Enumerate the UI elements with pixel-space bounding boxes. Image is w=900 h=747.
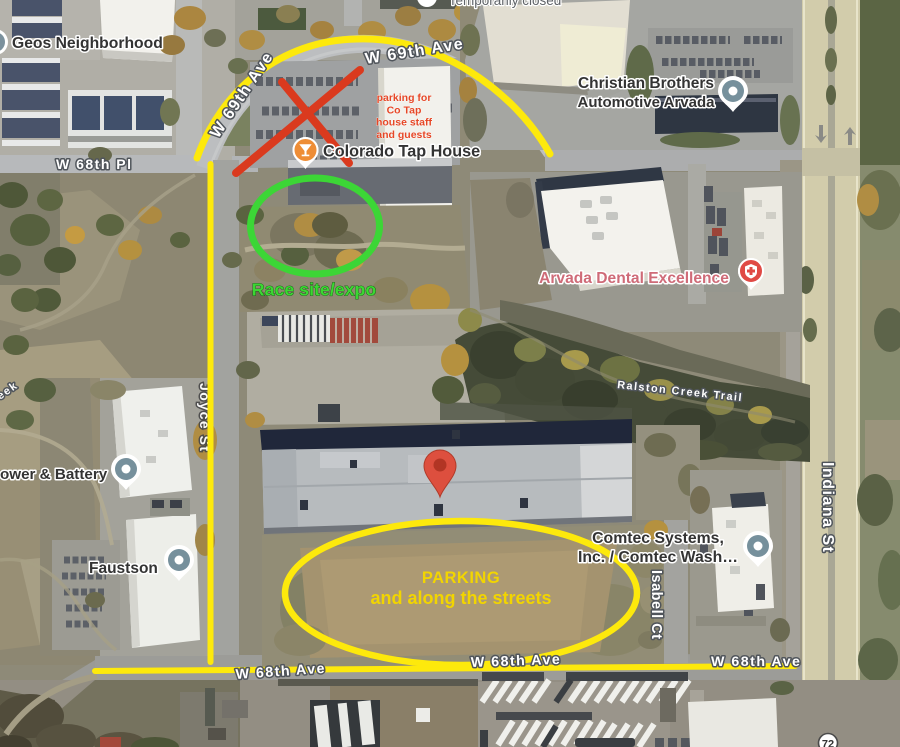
svg-text:house staff: house staff [376,117,433,129]
svg-text:PARKING: PARKING [422,569,500,587]
svg-text:Co Tap: Co Tap [387,104,422,116]
svg-text:and guests: and guests [376,129,432,141]
svg-text:Indiana St: Indiana St [819,462,836,553]
svg-text:Faustson: Faustson [89,560,158,577]
svg-text:Isabell Ct: Isabell Ct [648,570,664,639]
svg-text:and along the streets: and along the streets [370,588,551,608]
svg-text:W 68th Ave: W 68th Ave [471,652,562,671]
svg-text:Inc. / Comtec Wash…: Inc. / Comtec Wash… [578,549,738,566]
svg-text:72: 72 [822,739,834,747]
svg-text:Christian Brothers: Christian Brothers [578,75,714,92]
svg-text:Automotive Arvada: Automotive Arvada [578,94,716,111]
svg-text:Race site/expo: Race site/expo [252,280,377,300]
svg-text:Geos Neighborhood: Geos Neighborhood [12,35,163,52]
svg-text:W 68th Ave: W 68th Ave [711,654,801,670]
svg-text:ower & Battery: ower & Battery [0,466,108,483]
svg-text:W 68th Pl: W 68th Pl [56,156,133,172]
svg-text:Temporarily closed: Temporarily closed [449,0,562,8]
svg-text:Comtec Systems,: Comtec Systems, [592,530,724,547]
svg-text:parking for: parking for [377,92,432,104]
svg-text:Colorado Tap House: Colorado Tap House [323,143,480,161]
svg-text:Arvada Dental Excellence: Arvada Dental Excellence [539,270,729,287]
